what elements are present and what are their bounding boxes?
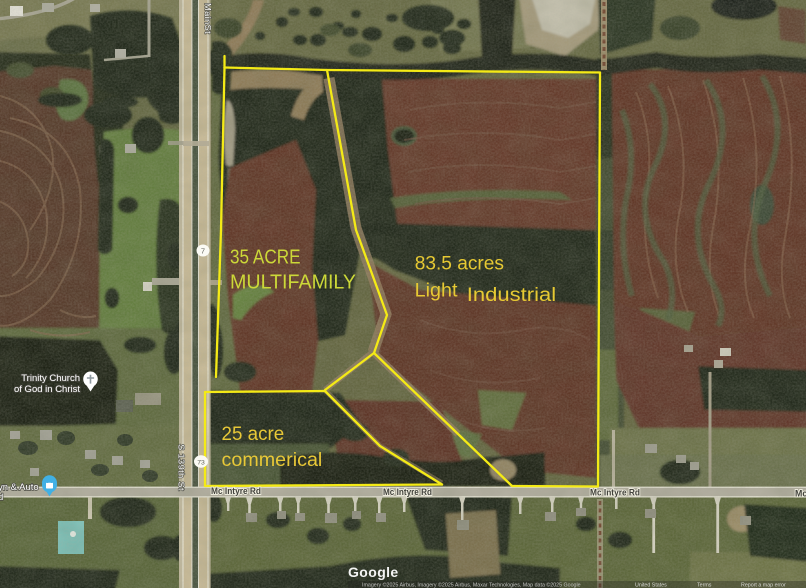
svg-text:73: 73 [197,459,205,466]
svg-text:d: d [0,492,3,503]
svg-text:MULTIFAMILY: MULTIFAMILY [230,272,356,294]
svg-text:Mc Intyre Rd: Mc Intyre Rd [590,488,640,498]
svg-text:Terms: Terms [697,582,712,588]
svg-text:Industrial: Industrial [467,284,556,306]
svg-text:Mc: Mc [795,489,806,499]
svg-text:Mc Intyre Rd: Mc Intyre Rd [211,486,261,496]
svg-text:Mc Intyre Rd: Mc Intyre Rd [383,487,432,497]
svg-text:MainSt: MainSt [203,3,213,34]
svg-text:Report a map error: Report a map error [741,582,786,588]
svg-text:Imagery ©2025 Airbus, Imagery: Imagery ©2025 Airbus, Imagery ©2025 Airb… [362,581,581,588]
svg-text:7: 7 [201,246,205,255]
svg-text:83.5 acres: 83.5 acres [415,252,504,274]
svg-text:Light: Light [415,280,458,302]
svg-text:United States: United States [635,582,667,588]
svg-text:25 acre: 25 acre [222,423,285,445]
svg-text:of God in Christ: of God in Christ [14,384,80,395]
svg-text:commerical: commerical [222,449,323,471]
svg-text:Google: Google [348,564,399,580]
svg-text:S 139th St: S 139th St [177,444,187,491]
svg-text:yn & Auto: yn & Auto [0,482,39,493]
svg-text:Trinity Church: Trinity Church [21,373,80,384]
svg-text:35 ACRE: 35 ACRE [230,247,301,269]
